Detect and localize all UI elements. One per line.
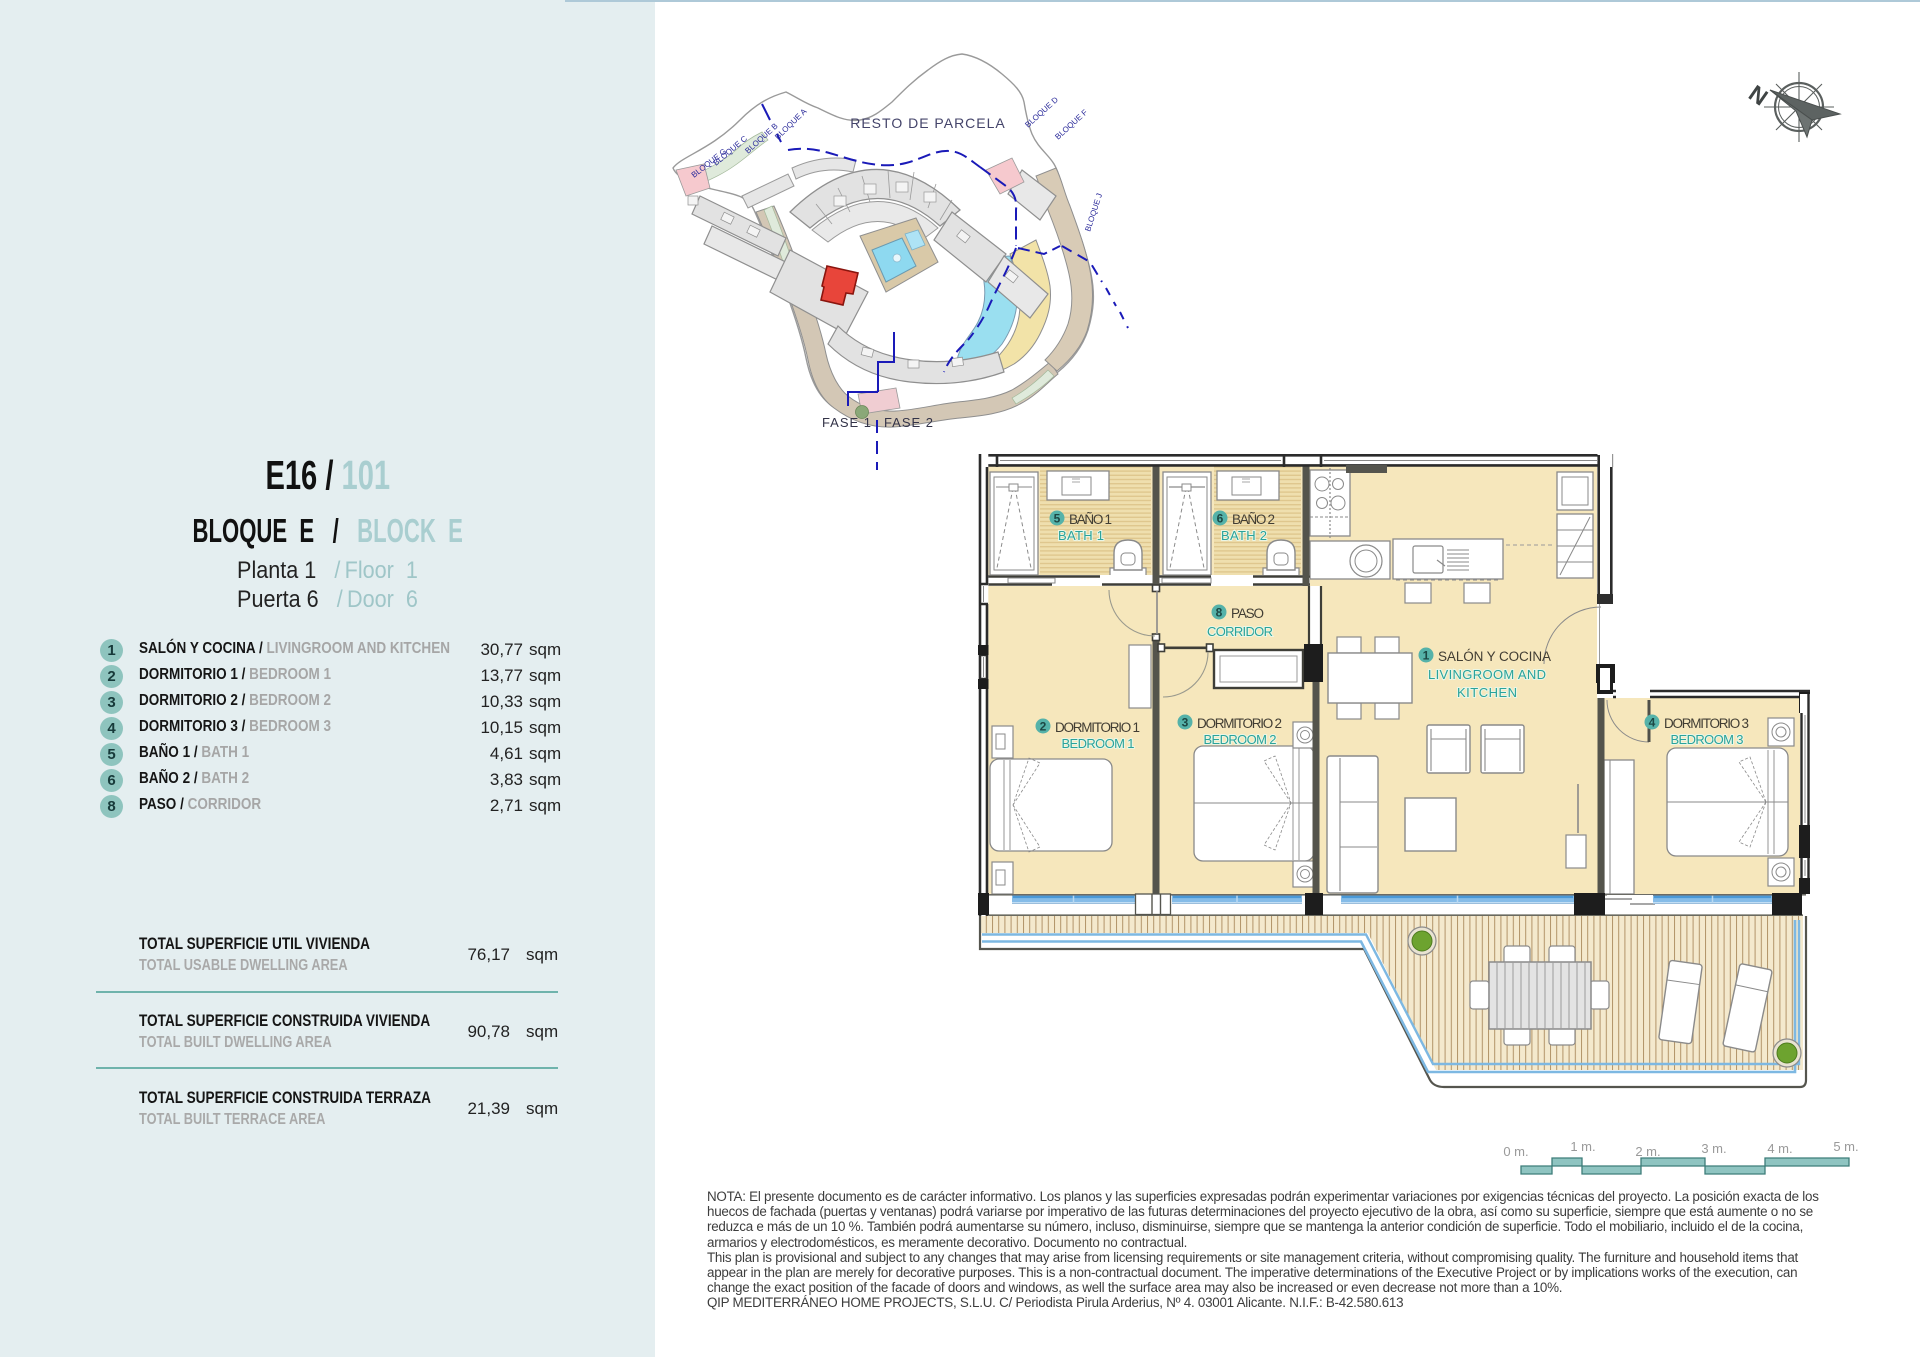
svg-text:LIVINGROOM AND: LIVINGROOM AND	[1428, 667, 1546, 682]
svg-text:SALÓN Y COCINA: SALÓN Y COCINA	[1438, 649, 1551, 664]
svg-text:1 m.: 1 m.	[1570, 1139, 1595, 1154]
svg-text:5 m.: 5 m.	[1833, 1139, 1858, 1154]
svg-text:FASE 2: FASE 2	[884, 415, 934, 430]
svg-text:4 m.: 4 m.	[1767, 1141, 1792, 1156]
svg-text:PASO: PASO	[1231, 606, 1264, 621]
svg-text:0 m.: 0 m.	[1503, 1144, 1528, 1159]
svg-text:N: N	[1744, 80, 1773, 111]
svg-text:2: 2	[1040, 720, 1047, 734]
svg-text:4: 4	[1649, 716, 1656, 730]
svg-text:5: 5	[1054, 512, 1061, 526]
svg-text:CORRIDOR: CORRIDOR	[1207, 624, 1273, 639]
svg-text:BEDROOM 2: BEDROOM 2	[1204, 732, 1277, 747]
svg-text:8: 8	[1216, 606, 1223, 620]
svg-text:KITCHEN: KITCHEN	[1457, 685, 1517, 700]
svg-text:BLOQUE D: BLOQUE D	[1023, 95, 1060, 130]
svg-text:RESTO DE PARCELA: RESTO DE PARCELA	[850, 115, 1006, 131]
svg-text:DORMITORIO 2: DORMITORIO 2	[1197, 716, 1282, 731]
svg-text:3: 3	[1182, 716, 1189, 730]
svg-text:6: 6	[1217, 512, 1224, 526]
svg-text:BLOQUE J: BLOQUE J	[1083, 192, 1104, 232]
svg-text:BAÑO 1: BAÑO 1	[1069, 512, 1112, 527]
svg-text:1: 1	[1423, 649, 1430, 663]
svg-text:2 m.: 2 m.	[1635, 1144, 1660, 1159]
svg-text:BEDROOM 1: BEDROOM 1	[1062, 736, 1135, 751]
svg-text:BATH 2: BATH 2	[1221, 528, 1267, 543]
svg-text:3 m.: 3 m.	[1701, 1141, 1726, 1156]
svg-text:DORMITORIO 3: DORMITORIO 3	[1664, 716, 1749, 731]
svg-text:BAÑO 2: BAÑO 2	[1232, 512, 1275, 527]
svg-text:BLOQUE F: BLOQUE F	[1053, 108, 1089, 142]
svg-text:BATH 1: BATH 1	[1058, 528, 1104, 543]
svg-text:FASE 1: FASE 1	[822, 415, 872, 430]
svg-text:DORMITORIO 1: DORMITORIO 1	[1055, 720, 1140, 735]
svg-text:BEDROOM 3: BEDROOM 3	[1671, 732, 1744, 747]
